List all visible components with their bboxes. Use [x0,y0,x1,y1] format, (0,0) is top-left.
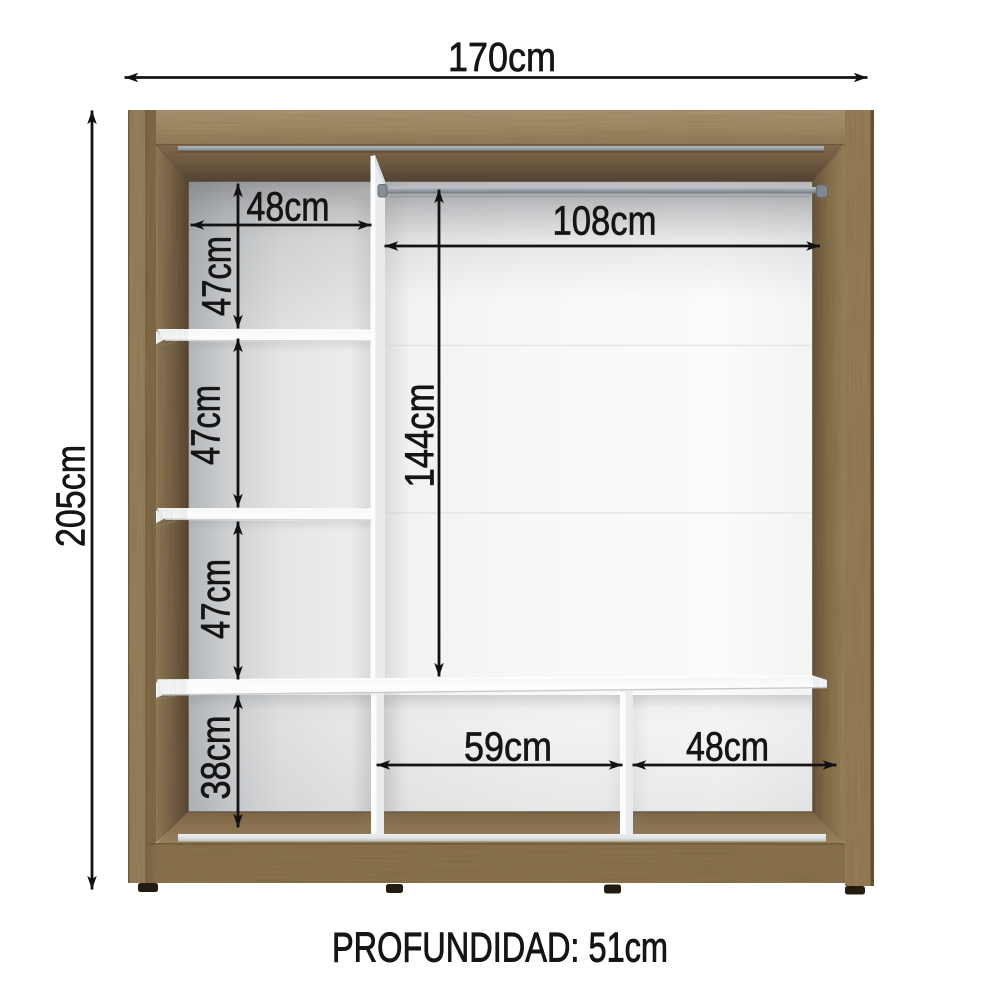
svg-text:38cm: 38cm [193,716,239,800]
svg-text:205cm: 205cm [48,445,94,547]
svg-text:47cm: 47cm [183,385,229,465]
svg-text:PROFUNDIDAD: 51cm: PROFUNDIDAD: 51cm [332,924,668,971]
svg-text:47cm: 47cm [194,236,240,316]
svg-text:59cm: 59cm [464,724,552,770]
svg-text:144cm: 144cm [397,384,443,488]
svg-text:47cm: 47cm [193,559,239,639]
svg-text:108cm: 108cm [553,198,657,244]
svg-text:170cm: 170cm [448,34,556,80]
svg-text:48cm: 48cm [247,184,330,230]
svg-text:48cm: 48cm [686,724,769,770]
